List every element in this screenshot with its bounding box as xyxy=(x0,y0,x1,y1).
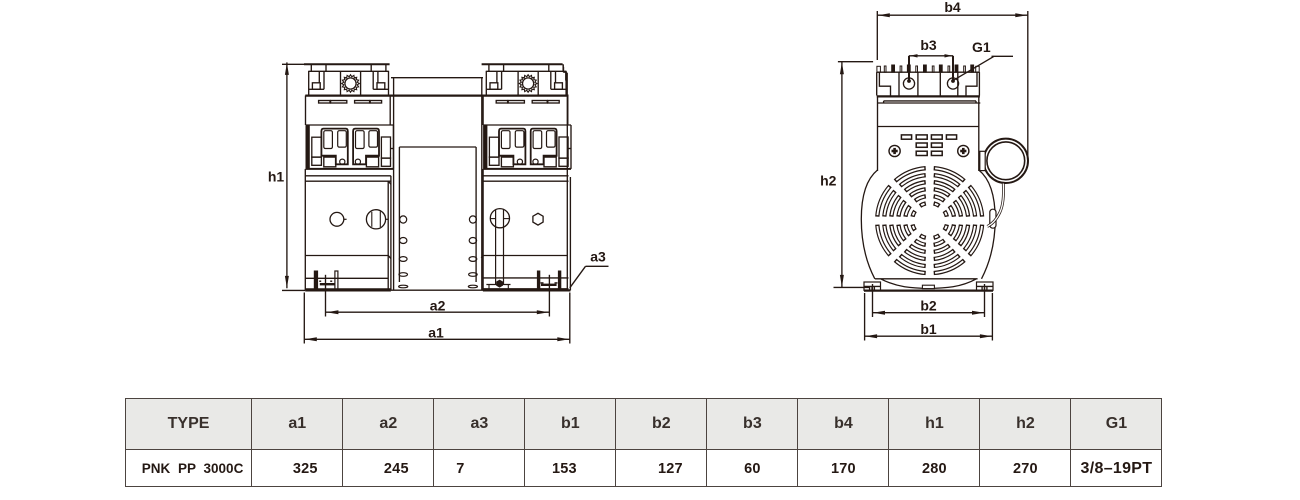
svg-text:G1: G1 xyxy=(972,39,991,55)
svg-text:h1: h1 xyxy=(268,169,285,185)
svg-text:b4: b4 xyxy=(944,0,961,15)
svg-text:a3: a3 xyxy=(590,249,606,265)
svg-text:a2: a2 xyxy=(430,297,446,313)
svg-text:a1: a1 xyxy=(428,324,444,340)
svg-text:h2: h2 xyxy=(820,173,837,189)
svg-text:b2: b2 xyxy=(920,298,937,314)
svg-text:b1: b1 xyxy=(920,321,937,337)
svg-text:b3: b3 xyxy=(920,37,937,53)
